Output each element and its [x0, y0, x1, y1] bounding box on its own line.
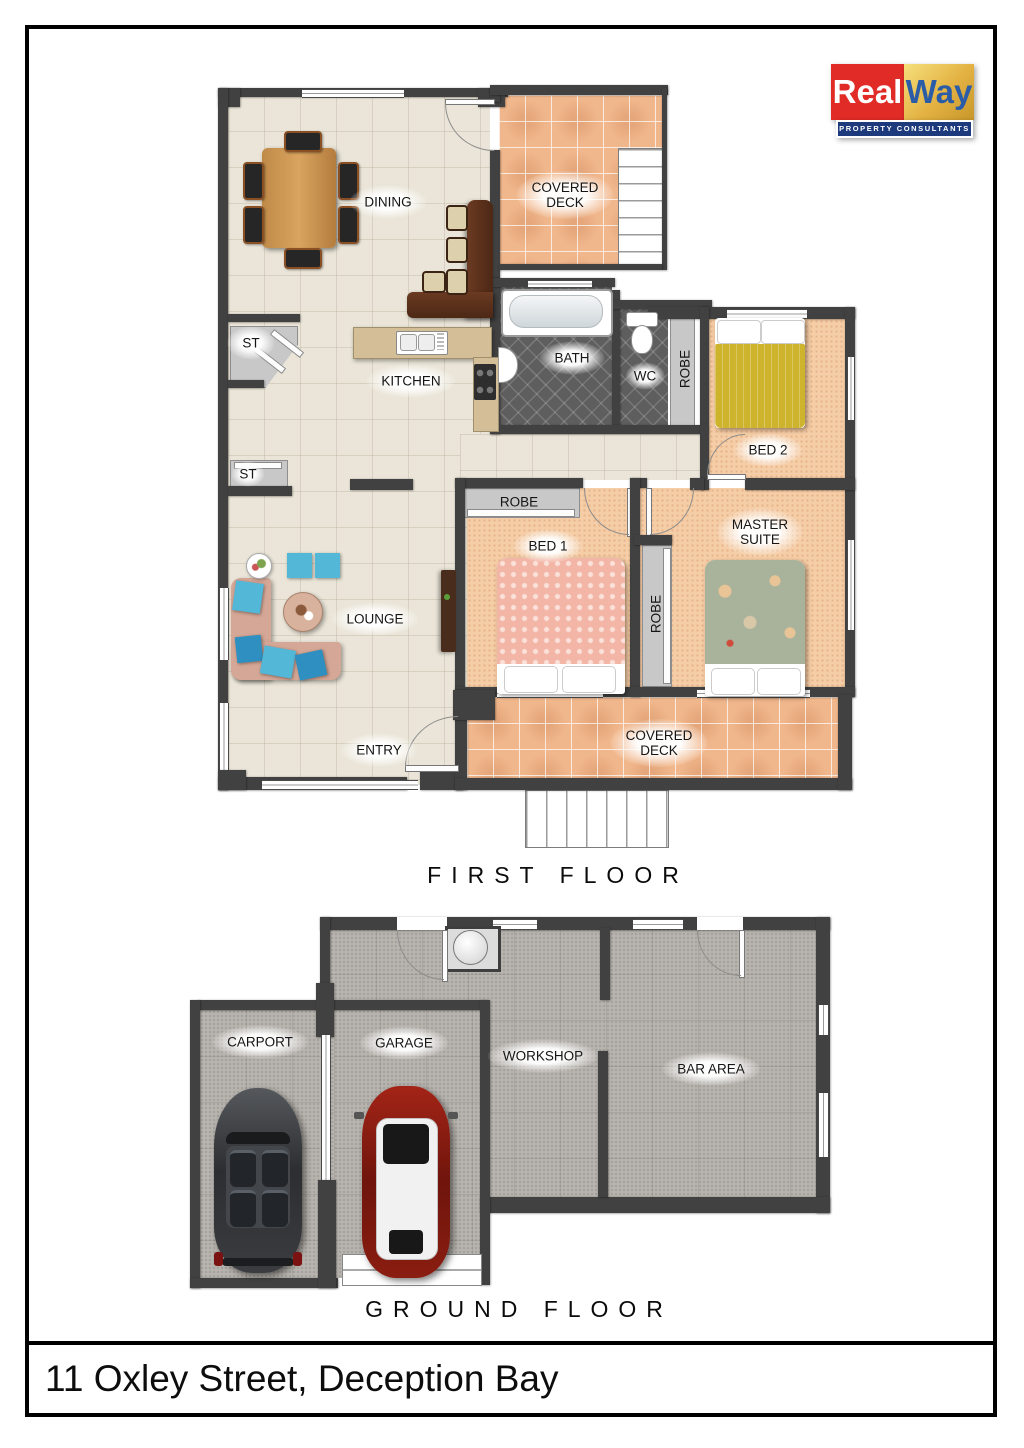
bathtub-basin: [509, 295, 603, 328]
room-label-covered-deck-top: COVERED DECK: [517, 171, 614, 219]
wall: [630, 478, 640, 697]
ground-floor-plan: CARPORT GARAGE WORKSHOP BAR AREA GROUND …: [0, 900, 1024, 1340]
wall-pier: [318, 1180, 336, 1288]
first-floor-plan: DINING COVERED DECK ST KITCHEN BATH WC R…: [0, 0, 1024, 900]
room-label-garage: GARAGE: [360, 1027, 448, 1060]
room-label-bar-area: BAR AREA: [662, 1053, 760, 1086]
window: [262, 780, 418, 790]
car-seat: [230, 1150, 256, 1187]
car-seat: [230, 1190, 256, 1227]
toilet-bowl: [631, 325, 653, 354]
bar-stool: [446, 205, 468, 231]
car-rear-window: [389, 1230, 423, 1254]
pillow: [757, 668, 801, 695]
wall: [499, 264, 662, 270]
wall: [662, 88, 667, 270]
wall: [190, 1000, 200, 1288]
room-label-bed2: BED 2: [733, 434, 802, 467]
window: [818, 1093, 829, 1157]
wall: [816, 917, 830, 1213]
hall-floor: [460, 434, 700, 480]
room-label-st-upper: ST: [227, 327, 274, 360]
wall: [490, 85, 668, 95]
car-taillight: [214, 1252, 223, 1266]
address-bar: 11 Oxley Street, Deception Bay: [25, 1341, 997, 1417]
door-opening: [697, 917, 743, 930]
room-label-lounge: LOUNGE: [331, 603, 418, 636]
room-label-dining: DINING: [349, 186, 426, 219]
wall-pier: [453, 690, 495, 720]
address-text: 11 Oxley Street, Deception Bay: [45, 1358, 558, 1399]
dining-table: [262, 148, 336, 248]
ground-floor-title: GROUND FLOOR: [269, 1296, 769, 1323]
wall: [490, 425, 708, 434]
wall: [218, 88, 228, 790]
car-windshield: [383, 1124, 429, 1164]
room-label-master-suite: MASTER SUITE: [717, 508, 803, 556]
window: [847, 357, 855, 420]
side-table: [246, 553, 272, 579]
pillow: [711, 668, 755, 695]
room-label-bed1: BED 1: [513, 530, 582, 563]
wall: [455, 478, 583, 488]
wall: [190, 1278, 338, 1288]
car-mirror: [354, 1112, 364, 1119]
carport-open-boundary: [321, 1035, 331, 1182]
bed2-cover: [715, 344, 805, 428]
master-cover: [705, 560, 805, 664]
room-label-robe-bed1: ROBE: [488, 491, 550, 514]
wall: [455, 778, 852, 790]
car-windshield: [226, 1132, 290, 1144]
coffee-table: [283, 592, 323, 632]
wall-pier: [316, 983, 334, 1037]
room-label-kitchen: KITCHEN: [366, 365, 455, 398]
window: [847, 540, 855, 630]
floorplan-page: 11 Oxley Street, Deception Bay Real Way …: [0, 0, 1024, 1448]
dining-chair: [243, 162, 264, 200]
wall: [455, 478, 465, 697]
room-label-st-lower: ST: [231, 462, 264, 487]
wall: [480, 1000, 490, 1285]
car-rear: [222, 1258, 294, 1266]
window: [818, 1005, 829, 1035]
water-heater: [453, 930, 488, 965]
room-label-robe-master: ROBE: [645, 585, 668, 643]
sofa-cushion: [232, 580, 264, 614]
wall: [197, 1000, 487, 1010]
dining-chair: [284, 248, 322, 269]
wall: [598, 1051, 608, 1197]
car-seat: [262, 1150, 288, 1187]
bar-stool: [446, 237, 468, 263]
wall: [612, 290, 620, 430]
room-label-carport: CARPORT: [212, 1026, 308, 1059]
ottoman: [287, 553, 312, 578]
car-seat: [262, 1190, 288, 1227]
wall: [634, 535, 672, 545]
pillow: [717, 320, 761, 344]
window: [219, 703, 229, 771]
room-label-wc: WC: [626, 363, 665, 390]
dining-chair: [243, 206, 264, 244]
bar-stool: [446, 269, 468, 295]
room-label-covered-deck-bottom: COVERED DECK: [611, 719, 708, 767]
stairs-top: [618, 148, 664, 268]
stove-cooktop: [474, 364, 496, 400]
sofa-cushion: [260, 645, 296, 678]
room-label-workshop: WORKSHOP: [488, 1040, 598, 1073]
bar-stool: [422, 271, 446, 293]
pillow: [504, 666, 558, 693]
window: [302, 89, 404, 98]
bed1-cover: [497, 558, 625, 664]
wall: [838, 695, 852, 790]
window: [528, 280, 592, 288]
car-taillight: [293, 1252, 302, 1266]
pillow: [562, 666, 616, 693]
first-floor-title: FIRST FLOOR: [308, 862, 808, 889]
pillow: [761, 320, 805, 344]
wall: [228, 486, 292, 496]
tv-decor: [444, 594, 450, 600]
door-opening: [397, 917, 447, 930]
sofa-cushion: [235, 635, 264, 664]
wall: [350, 479, 413, 490]
window: [219, 588, 229, 660]
wall-pier: [218, 770, 246, 790]
wall: [228, 380, 264, 388]
wall: [480, 1197, 830, 1213]
wall: [600, 928, 610, 1000]
breakfast-bar: [407, 292, 493, 318]
wall: [700, 307, 709, 490]
wall: [228, 314, 300, 322]
room-label-robe-bed2: ROBE: [674, 340, 697, 398]
room-label-bath: BATH: [539, 342, 604, 375]
room-label-entry: ENTRY: [341, 734, 417, 767]
tv-unit: [441, 570, 456, 652]
stairs-bottom: [525, 790, 669, 848]
dining-chair: [284, 131, 322, 152]
wall: [745, 478, 855, 490]
ottoman: [315, 553, 340, 578]
window: [633, 919, 683, 930]
car-mirror: [448, 1112, 458, 1119]
